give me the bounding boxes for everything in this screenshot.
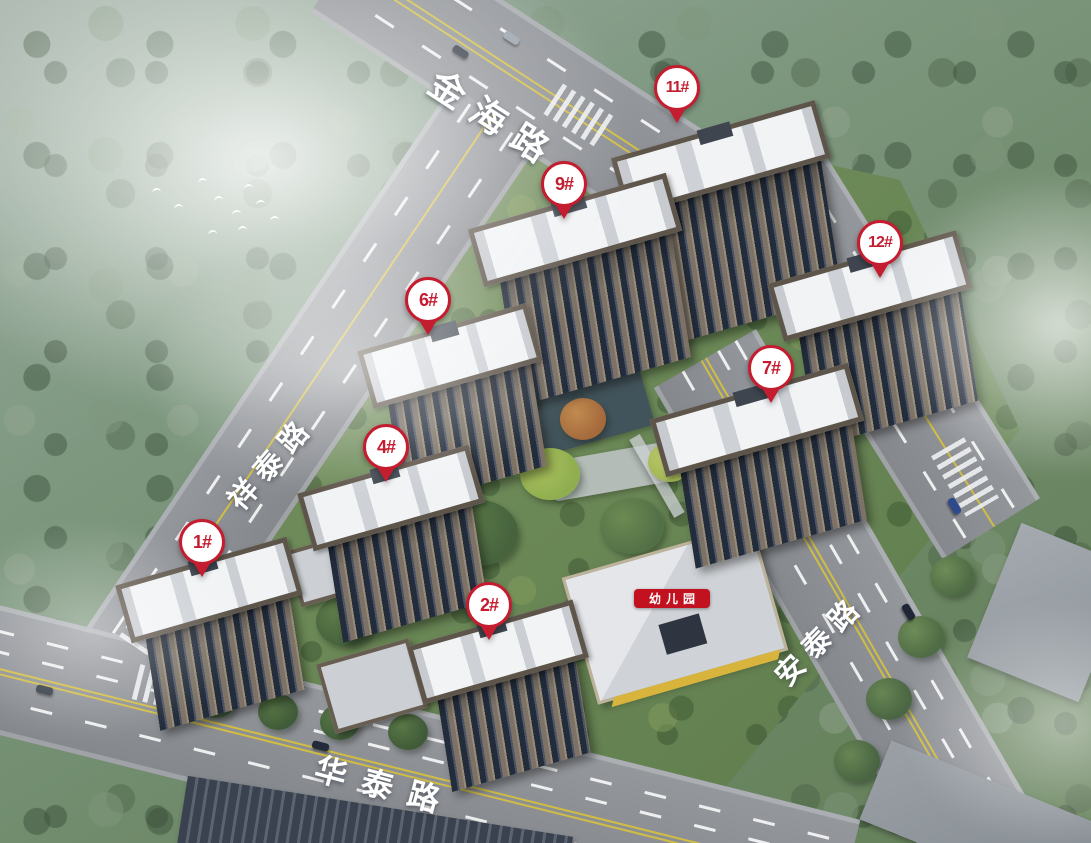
marker-pin-tail	[668, 108, 686, 123]
marker-pin-tail	[555, 204, 573, 219]
marker-pin-label: 1#	[179, 519, 225, 565]
marker-pin-6[interactable]: 6#	[405, 277, 451, 323]
marker-pin-tail	[871, 263, 889, 278]
marker-pin-11[interactable]: 11#	[654, 65, 700, 111]
marker-pin-tail	[419, 320, 437, 335]
marker-pin-label: 11#	[654, 65, 700, 111]
tree	[600, 498, 664, 554]
kindergarten-roof-unit	[658, 614, 707, 655]
marker-pin-12[interactable]: 12#	[857, 220, 903, 266]
marker-pin-label: 2#	[466, 582, 512, 628]
marker-pin-tail	[480, 625, 498, 640]
kindergarten-label: 幼儿园	[634, 589, 710, 608]
marker-pin-label: 9#	[541, 161, 587, 207]
marker-pin-label: 6#	[405, 277, 451, 323]
marker-pin-7[interactable]: 7#	[748, 345, 794, 391]
tree	[930, 556, 974, 596]
marker-pin-label: 7#	[748, 345, 794, 391]
marker-pin-4[interactable]: 4#	[363, 424, 409, 470]
tree	[388, 714, 428, 750]
marker-pin-tail	[193, 562, 211, 577]
marker-pin-1[interactable]: 1#	[179, 519, 225, 565]
marker-pin-9[interactable]: 9#	[541, 161, 587, 207]
tree	[560, 398, 606, 440]
tree	[834, 740, 880, 782]
marker-pin-tail	[762, 388, 780, 403]
marker-pin-2[interactable]: 2#	[466, 582, 512, 628]
aerial-site-plan: 幼儿园 金海路 祥泰路 安泰路 华泰路 1# 2# 4# 6# 7#	[0, 0, 1091, 843]
tree	[866, 678, 912, 720]
marker-pin-label: 4#	[363, 424, 409, 470]
marker-pin-label: 12#	[857, 220, 903, 266]
birds-flock	[148, 160, 298, 240]
marker-pin-tail	[377, 467, 395, 482]
tree	[898, 616, 944, 658]
